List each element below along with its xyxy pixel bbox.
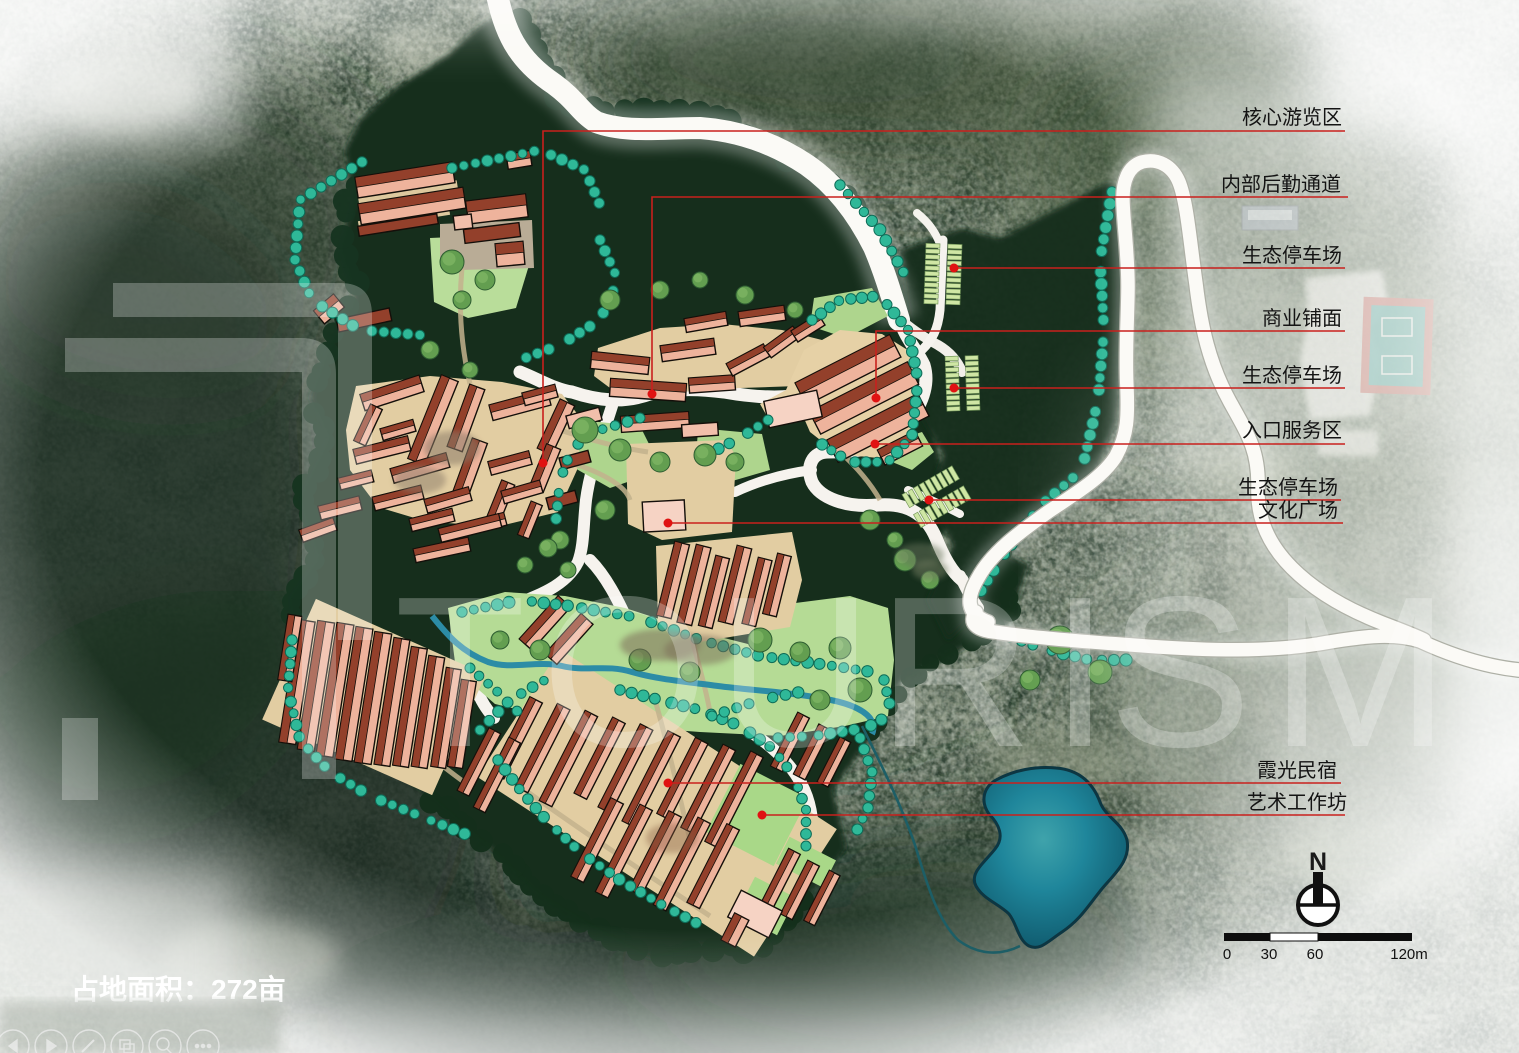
svg-text:生态停车场: 生态停车场 [1242,244,1342,267]
svg-text:生态停车场: 生态停车场 [1242,364,1342,387]
svg-text:T: T [394,551,525,792]
svg-text:核心游览区: 核心游览区 [1242,106,1342,129]
svg-text:30: 30 [1261,946,1278,963]
svg-text:艺术工作坊: 艺术工作坊 [1247,791,1347,814]
svg-text:占地面积：272亩: 占地面积：272亩 [71,973,286,1005]
svg-text:U: U [717,551,872,792]
svg-text:霞光民宿: 霞光民宿 [1257,759,1337,782]
svg-text:R: R [877,551,1032,792]
svg-text:120m: 120m [1390,946,1428,963]
svg-text:文化广场: 文化广场 [1258,499,1338,522]
svg-text:I: I [1050,551,1110,792]
svg-text:60: 60 [1307,946,1324,963]
svg-text:S: S [1108,551,1251,792]
svg-text:0: 0 [1223,946,1231,963]
svg-text:O: O [541,551,708,792]
svg-text:M: M [1270,551,1449,792]
svg-text:商业铺面: 商业铺面 [1262,307,1342,330]
svg-text:入口服务区: 入口服务区 [1242,419,1342,442]
svg-text:N: N [1309,848,1327,876]
svg-text:内部后勤通道: 内部后勤通道 [1221,173,1341,196]
svg-text:生态停车场: 生态停车场 [1238,476,1338,499]
